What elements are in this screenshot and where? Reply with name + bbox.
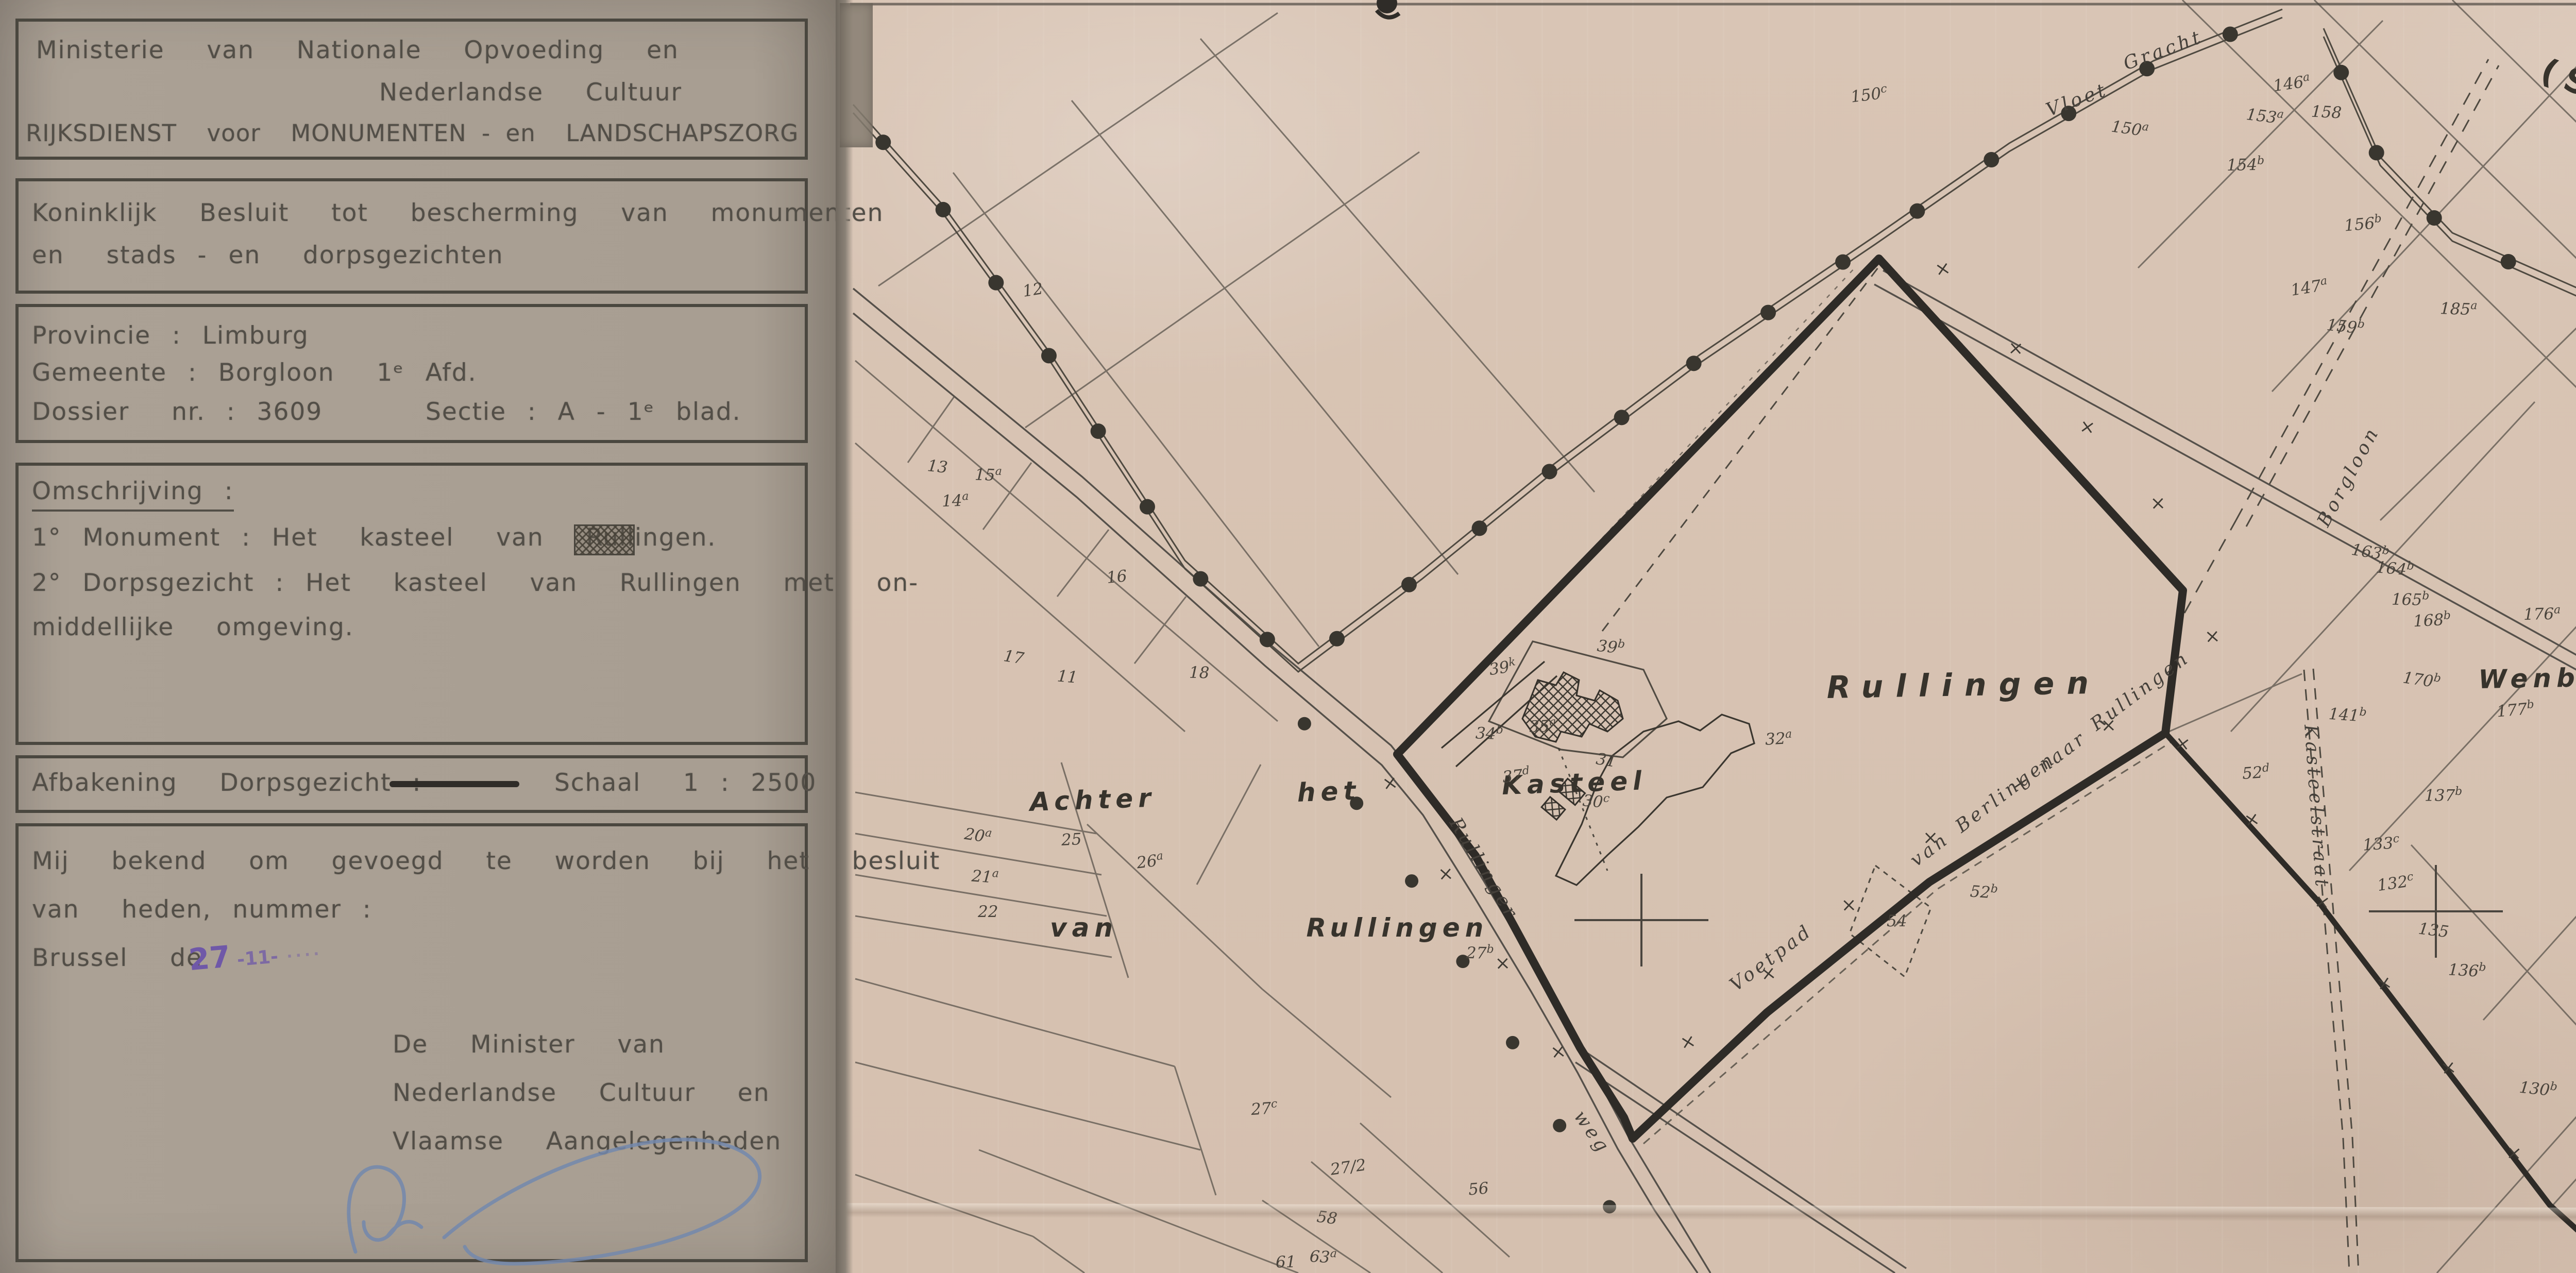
bekend-line2: van heden, nummer : [32,895,372,924]
monument-hatch-swatch [574,524,635,555]
afbakening-label: Afbakening Dorpsgezicht : [32,769,421,797]
besluit-voetnoot-box: Mij bekend om gevoegd te worden bij het … [15,823,808,1262]
dorpsgezicht-line-sample [389,781,519,787]
besluit-line2: en stads - en dorpsgezichten [32,241,504,269]
sectie-line: Sectie : A - 1ᵉ blad. [426,398,741,426]
dossier-box: Provincie : Limburg Gemeente : Borgloon … [15,304,808,443]
omschrijving-box: Omschrijving : 1° Monument : Het kasteel… [15,463,808,745]
minister-line3: Vlaamse Aangelegenheden [393,1127,782,1156]
schaal-label: Schaal 1 : 2500 [554,769,817,797]
panel-sheet-edge [836,0,853,1273]
ministry-line2: Nederlandse Cultuur [379,78,682,107]
gemeente-line: Gemeente : Borgloon 1ᵉ Afd. [32,359,477,387]
afbakening-box: Afbakening Dorpsgezicht : Schaal 1 : 250… [15,755,808,813]
legend-panel: Ministerie van Nationale Opvoeding en Ne… [0,0,836,1273]
provincie-line: Provincie : Limburg [32,321,309,350]
besluit-box: Koninklijk Besluit tot bescherming van m… [15,178,808,294]
scanned-protection-plan: ×××××××××××××××××××××× RullingenAchter h… [0,0,2576,1273]
dorpsgezicht-item-cont: middellijke omgeving. [32,613,354,641]
besluit-line1: Koninklijk Besluit tot bescherming van m… [32,199,884,227]
minister-line2: Nederlandse Cultuur en [393,1079,770,1107]
dossier-line: Dossier nr. : 3609 [32,398,323,426]
dorpsgezicht-item: 2° Dorpsgezicht : Het kasteel van Rullin… [32,569,919,597]
rijksdienst-line: RIJKSDIENST voor MONUMENTEN - en LANDSCH… [26,120,799,147]
bekend-line1: Mij bekend om gevoegd te worden bij het … [32,847,940,875]
tape-fragment [840,3,873,147]
date-stamp: 27 -11- ···· [188,931,324,977]
ministry-header-box: Ministerie van Nationale Opvoeding en Ne… [15,19,808,160]
brussel-line: Brussel de [32,944,202,972]
minister-line1: De Minister van [393,1030,665,1059]
ministry-line1: Ministerie van Nationale Opvoeding en [36,36,679,64]
omschrijving-title: Omschrijving : [32,477,234,512]
